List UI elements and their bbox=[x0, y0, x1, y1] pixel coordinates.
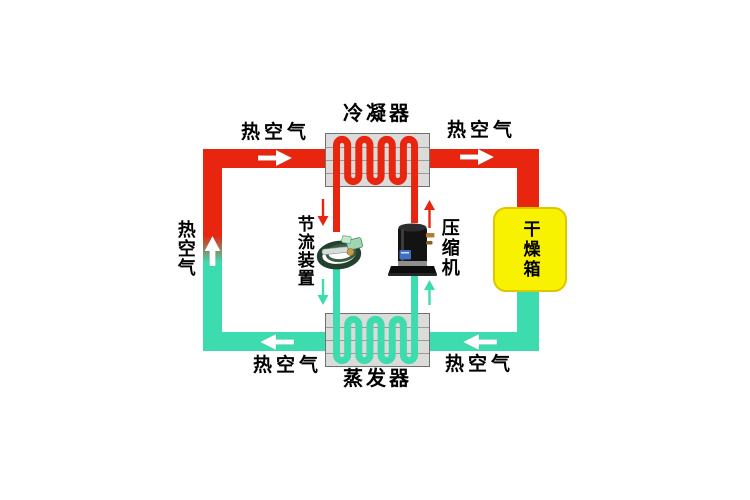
hot-air-label-top-right: 热空气 bbox=[447, 121, 516, 142]
dryer-box-label: 干燥箱 bbox=[518, 220, 543, 280]
refrigerant-arrow-up-hot-icon bbox=[424, 200, 435, 228]
dryer-box: 干燥箱 bbox=[493, 207, 567, 292]
compressor-photo bbox=[388, 224, 437, 277]
evaporator-label: 蒸发器 bbox=[325, 368, 430, 390]
hot-air-duct-into-dryer bbox=[517, 149, 539, 211]
hot-air-label-bottom-right: 热空气 bbox=[445, 355, 514, 376]
evaporator-fin-line bbox=[326, 327, 429, 328]
compressor-label: 压缩机 bbox=[439, 218, 459, 278]
condenser-box bbox=[325, 133, 430, 187]
throttle-device-photo bbox=[318, 235, 363, 268]
evaporator-box bbox=[325, 313, 430, 367]
condenser-label: 冷凝器 bbox=[325, 103, 430, 125]
condenser-fin-line bbox=[326, 173, 429, 174]
refrigerant-arrow-down-hot-icon bbox=[318, 199, 329, 226]
cold-air-duct-out-of-dryer bbox=[517, 288, 539, 351]
refrigerant-arrow-down-cold-icon bbox=[318, 279, 329, 305]
heat-pump-dryer-diagram: 干燥箱 bbox=[0, 0, 750, 500]
evaporator-fin-line bbox=[326, 340, 429, 341]
condenser-fin-line bbox=[326, 147, 429, 148]
air-duct-left-transition bbox=[203, 149, 222, 351]
evaporator-fin-line bbox=[326, 353, 429, 354]
hot-air-label-bottom-left: 热空气 bbox=[253, 356, 322, 377]
throttle-device-label: 节流装置 bbox=[294, 215, 313, 287]
hot-air-label-left-vertical: 热空气 bbox=[175, 220, 195, 277]
hot-air-label-top-left: 热空气 bbox=[241, 123, 310, 144]
refrigerant-arrow-up-cold-icon bbox=[424, 280, 435, 305]
condenser-fin-line bbox=[326, 160, 429, 161]
